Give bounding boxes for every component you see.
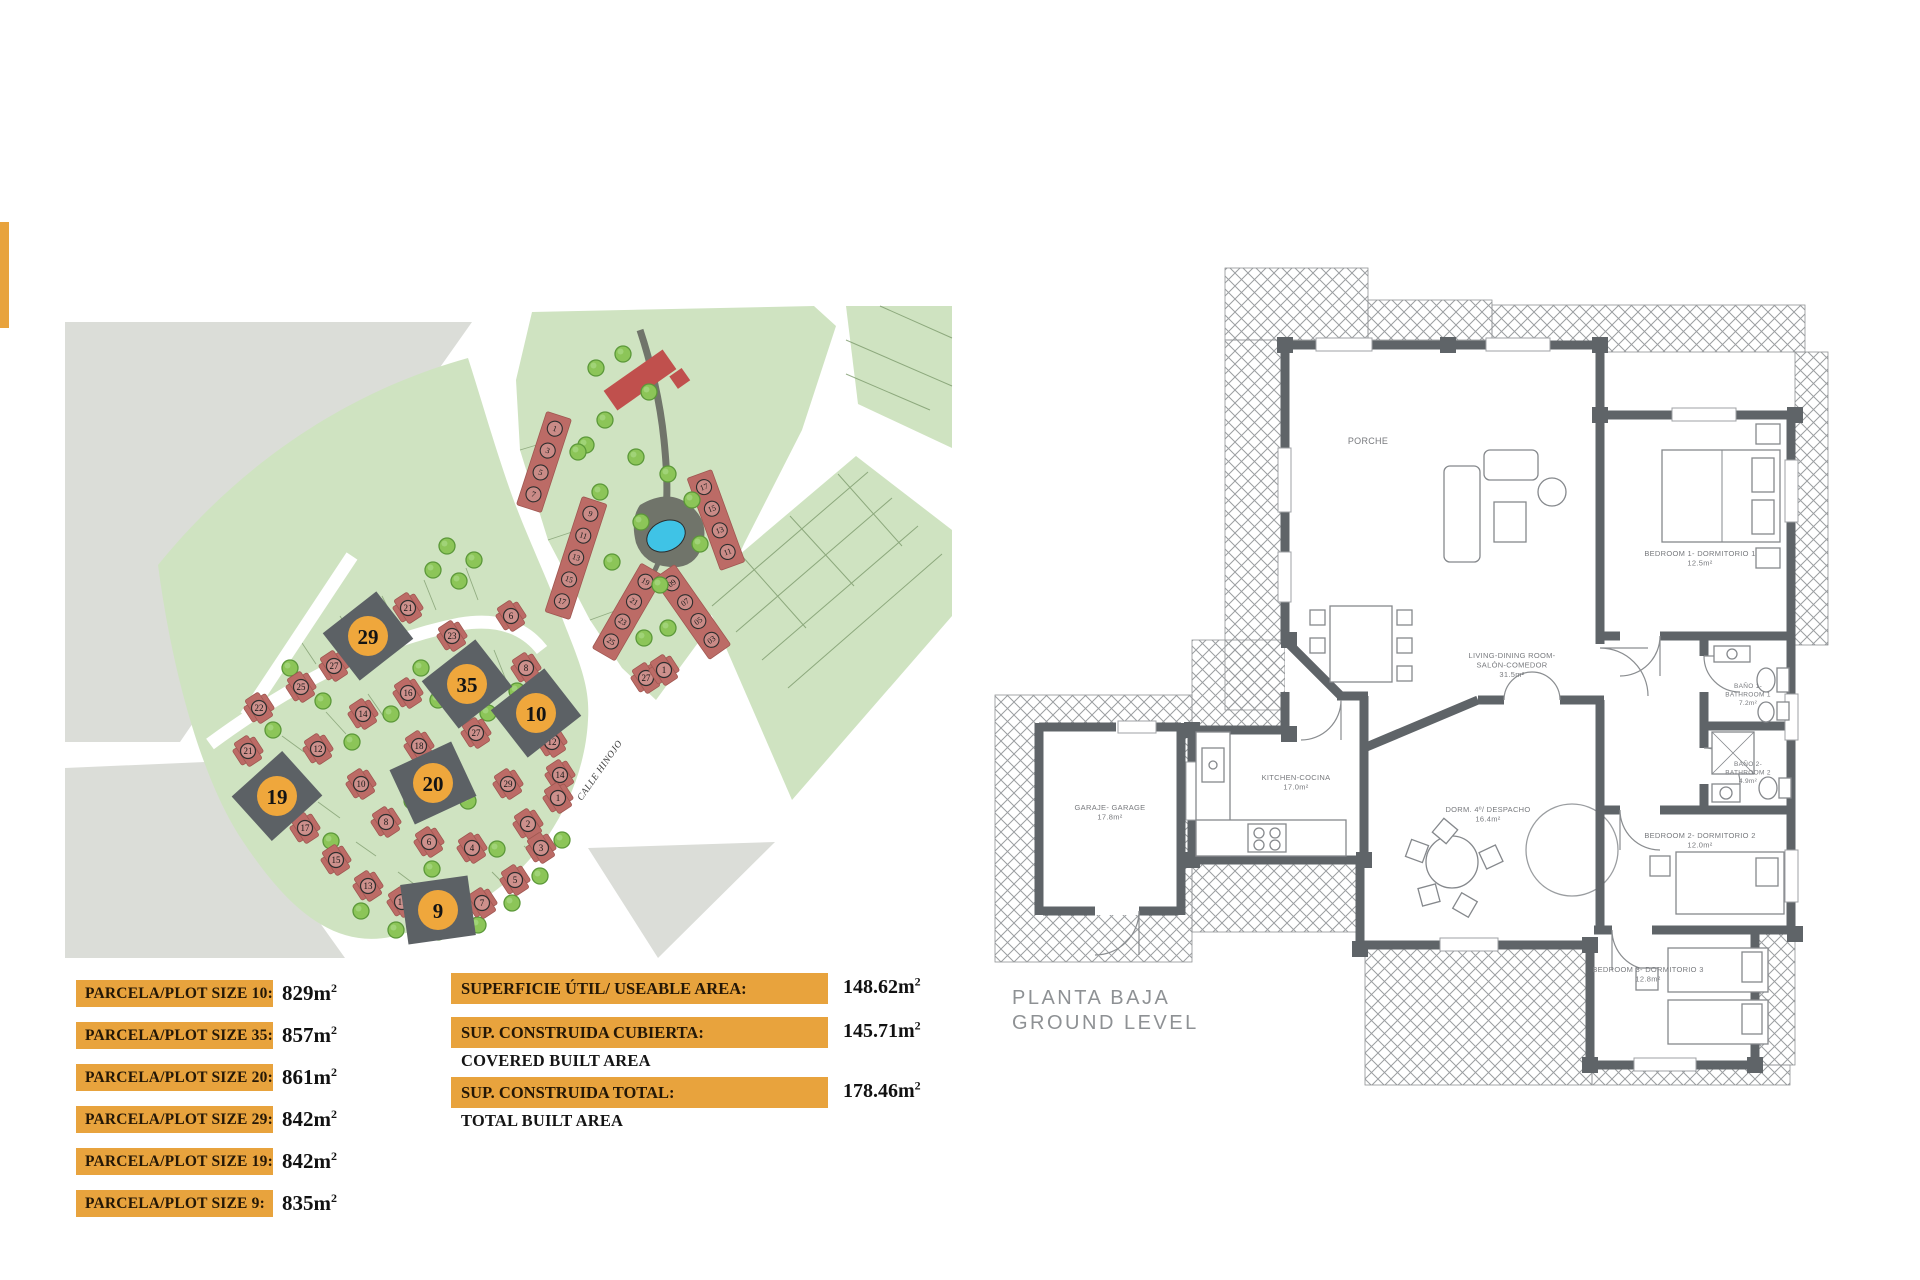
- plot-size-value: 835m2: [282, 1190, 337, 1217]
- site-map: 1357911131517192123251715131109070503212…: [65, 306, 952, 958]
- tree-icon: [532, 868, 548, 884]
- house-number: 10: [357, 779, 367, 789]
- tree-icon: [353, 903, 369, 919]
- tree-icon: [597, 412, 613, 428]
- house-number: 7: [480, 898, 485, 908]
- tree-icon: [425, 562, 441, 578]
- plot-size-label: PARCELA/PLOT SIZE 10:: [76, 980, 273, 1007]
- plot-size-row: PARCELA/PLOT SIZE 20: 861m2: [76, 1064, 337, 1091]
- plot-highlight-number: 35: [457, 673, 478, 697]
- tree-icon: [413, 660, 429, 676]
- plot-highlight-number: 19: [267, 785, 288, 809]
- plot-size-legend: PARCELA/PLOT SIZE 10: 829m2 PARCELA/PLOT…: [76, 980, 337, 1232]
- house-number: 6: [427, 837, 432, 847]
- plot-highlight-number: 29: [358, 625, 379, 649]
- tree-icon: [641, 384, 657, 400]
- total-built-area-sublabel: TOTAL BUILT AREA: [461, 1111, 623, 1131]
- tree-icon: [615, 346, 631, 362]
- tree-icon: [652, 577, 668, 593]
- tree-icon: [570, 444, 586, 460]
- tree-icon: [424, 861, 440, 877]
- tree-icon: [588, 360, 604, 376]
- covered-built-area-value: 145.71m2: [843, 1020, 921, 1043]
- tree-icon: [660, 466, 676, 482]
- house-number: 14: [359, 709, 369, 719]
- house-number: 1: [556, 793, 561, 803]
- tree-icon: [315, 693, 331, 709]
- tree-icon: [604, 554, 620, 570]
- plot-size-value: 857m2: [282, 1022, 337, 1049]
- map-green-patch: [846, 306, 952, 448]
- built-area-legend: SUPERFICIE ÚTIL/ USEABLE AREA: 148.62m2 …: [451, 973, 991, 1173]
- page: 1357911131517192123251715131109070503212…: [0, 0, 1920, 1280]
- useable-area-value: 148.62m2: [843, 976, 921, 999]
- tree-icon: [692, 536, 708, 552]
- tree-icon: [636, 630, 652, 646]
- house-number: 5: [513, 875, 518, 885]
- map-gray-zone: [588, 842, 775, 958]
- tree-icon: [628, 449, 644, 465]
- house-number: 27: [642, 673, 652, 683]
- plan-title: PLANTA BAJA GROUND LEVEL: [1012, 986, 1199, 1036]
- house-number: 21: [404, 603, 413, 613]
- floor-plan: PORCHELIVING-DINING ROOM-SALÓN-COMEDOR31…: [995, 268, 1828, 1085]
- house-number: 18: [415, 741, 425, 751]
- tree-icon: [451, 573, 467, 589]
- house-number: 27: [330, 661, 340, 671]
- house-number: 14: [556, 770, 566, 780]
- tree-icon: [388, 922, 404, 938]
- plot-size-row: PARCELA/PLOT SIZE 35: 857m2: [76, 1022, 337, 1049]
- plot-size-value: 842m2: [282, 1106, 337, 1133]
- plot-size-label: PARCELA/PLOT SIZE 20:: [76, 1064, 273, 1091]
- tree-icon: [504, 895, 520, 911]
- house-number: 1: [662, 665, 667, 675]
- plan-title-line2: GROUND LEVEL: [1012, 1011, 1199, 1036]
- house-number: 8: [384, 817, 389, 827]
- plot-size-row: PARCELA/PLOT SIZE 9: 835m2: [76, 1190, 337, 1217]
- tree-icon: [265, 722, 281, 738]
- plot-size-label: PARCELA/PLOT SIZE 29:: [76, 1106, 273, 1133]
- house-number: 6: [509, 611, 514, 621]
- house-number: 4: [470, 843, 475, 853]
- plot-highlight-number: 20: [423, 772, 444, 796]
- plot-size-value: 861m2: [282, 1064, 337, 1091]
- house-number: 2: [526, 819, 531, 829]
- total-built-area-value: 178.46m2: [843, 1080, 921, 1103]
- house-number: 8: [524, 663, 529, 673]
- tree-icon: [466, 552, 482, 568]
- tree-icon: [489, 841, 505, 857]
- plan-title-line1: PLANTA BAJA: [1012, 986, 1199, 1011]
- plot-size-label: PARCELA/PLOT SIZE 35:: [76, 1022, 273, 1049]
- house-number: 23: [448, 631, 458, 641]
- house-number: 16: [404, 688, 414, 698]
- house-number: 12: [314, 744, 323, 754]
- plot-highlight-number: 9: [433, 899, 444, 923]
- house-number: 15: [332, 855, 342, 865]
- plot-size-row: PARCELA/PLOT SIZE 19: 842m2: [76, 1148, 337, 1175]
- house-number: 22: [255, 703, 264, 713]
- plot-size-value: 829m2: [282, 980, 337, 1007]
- tree-icon: [344, 734, 360, 750]
- plot-highlight-9: 9: [400, 876, 476, 945]
- house-number: 13: [364, 881, 374, 891]
- covered-built-area-label: SUP. CONSTRUIDA CUBIERTA:: [451, 1017, 828, 1048]
- house-number: 3: [539, 843, 544, 853]
- house-number: 21: [244, 746, 253, 756]
- tree-icon: [554, 832, 570, 848]
- plot-size-row: PARCELA/PLOT SIZE 10: 829m2: [76, 980, 337, 1007]
- plot-size-label: PARCELA/PLOT SIZE 19:: [76, 1148, 273, 1175]
- covered-built-area-sublabel: COVERED BUILT AREA: [461, 1051, 651, 1071]
- house-number: 27: [472, 728, 482, 738]
- plot-size-value: 842m2: [282, 1148, 337, 1175]
- house-number: 29: [504, 779, 514, 789]
- plot-size-row: PARCELA/PLOT SIZE 29: 842m2: [76, 1106, 337, 1133]
- tree-icon: [383, 706, 399, 722]
- tree-icon: [660, 620, 676, 636]
- tree-icon: [684, 492, 700, 508]
- plot-highlight-number: 10: [526, 702, 547, 726]
- house-number: 17: [301, 823, 311, 833]
- house-number: 25: [297, 682, 307, 692]
- tree-icon: [592, 484, 608, 500]
- total-built-area-label: SUP. CONSTRUIDA TOTAL:: [451, 1077, 828, 1108]
- tree-icon: [439, 538, 455, 554]
- tree-icon: [633, 514, 649, 530]
- room-label: PORCHE: [1348, 436, 1388, 446]
- useable-area-label: SUPERFICIE ÚTIL/ USEABLE AREA:: [451, 973, 828, 1004]
- plot-size-label: PARCELA/PLOT SIZE 9:: [76, 1190, 273, 1217]
